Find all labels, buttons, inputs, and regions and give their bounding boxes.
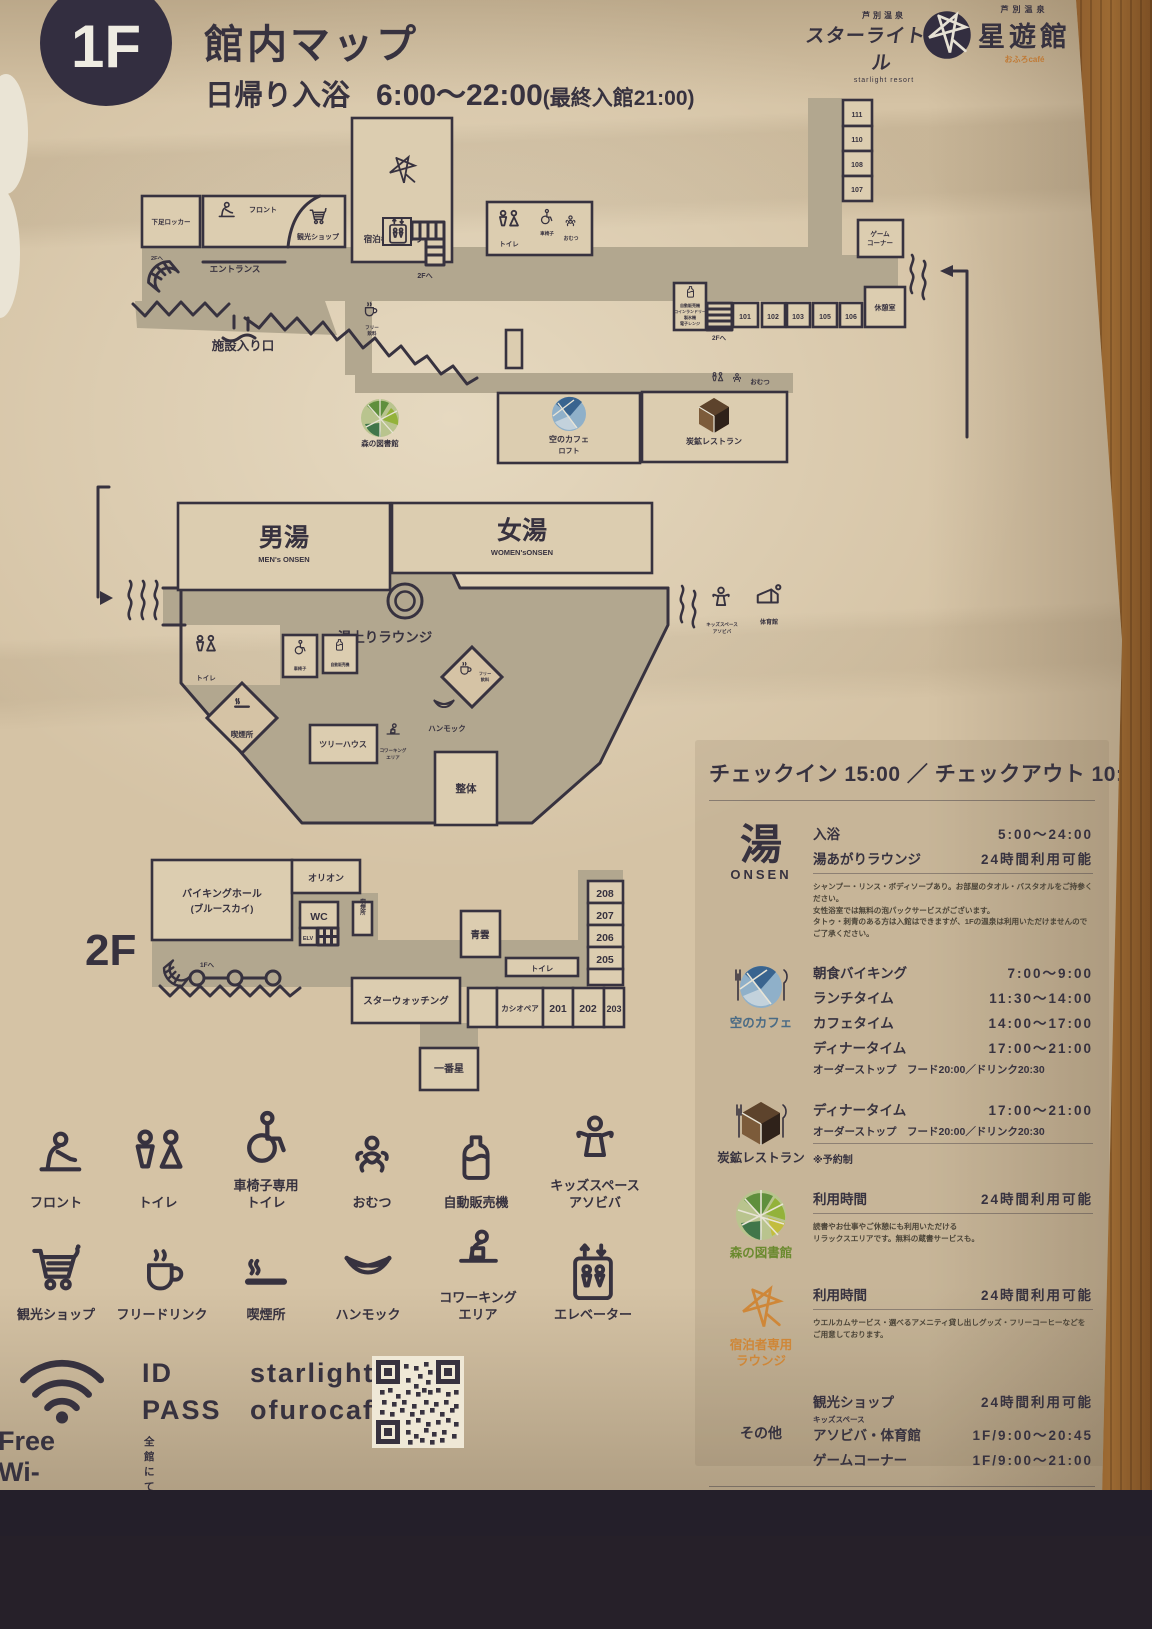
seiyukan-logo: 芦別温泉 星遊館 おふろcafé xyxy=(922,4,1071,65)
kids-space-icon xyxy=(565,1112,625,1172)
womens-onsen-label: 女湯 xyxy=(497,516,547,545)
restaurant-reserve-note: ※予約制 xyxy=(813,1151,1093,1166)
seiyukan-top-label: 芦別温泉 xyxy=(978,4,1071,15)
row-label: 湯あがりラウンジ xyxy=(813,848,921,868)
to-1f-label: 1Fへ xyxy=(200,962,215,969)
legend-front: フロント xyxy=(6,1127,106,1212)
coal-restaurant-icon xyxy=(730,1099,792,1147)
row-time: 24時間利用可能 xyxy=(981,1391,1093,1411)
elevator-icon xyxy=(564,1243,622,1301)
legend-elevator: エレベーター xyxy=(534,1243,652,1324)
coal-restaurant-name: 炭鉱レストラン xyxy=(717,1151,805,1167)
onsen-note1: シャンプー・リンス・ボディソープあり。お部屋のタオル・バスタオルをご持参ください… xyxy=(813,881,1093,905)
guest-lounge-name: 宿泊者専用ラウンジ xyxy=(730,1338,793,1369)
divider xyxy=(709,1486,1095,1487)
map-paper: 1F 館内マップ 日帰り入浴6:00〜22:00(最終入館21:00) 芦別温泉… xyxy=(0,0,1130,1496)
section-sky-cafe: 空のカフェ 朝食バイキング7:00〜9:00 ランチタイム11:30〜14:00… xyxy=(709,962,1095,1077)
rest-room-label: 休憩室 xyxy=(874,303,896,312)
smoking-icon xyxy=(237,1243,295,1301)
floor2-map: 2F バイキングホール (ブルースカイ) オリオン WC ELV 喫煙所 青雲 … xyxy=(85,855,645,1100)
toilet-label: トイレ xyxy=(499,240,519,248)
background-object xyxy=(0,188,20,318)
shop-label: 観光ショップ xyxy=(297,232,340,241)
room-111: 111 xyxy=(852,112,863,119)
legend-kids-space: キッズスペースアソビバ xyxy=(530,1112,660,1212)
free-drink-icon xyxy=(133,1243,191,1301)
others-name: その他 xyxy=(740,1423,782,1443)
womens-onsen-en-label: WOMEN'sONSEN xyxy=(491,548,553,557)
front-desk-icon xyxy=(25,1127,87,1189)
window-circles xyxy=(190,971,280,985)
sky-cafe-icon xyxy=(730,962,792,1012)
wifi-qr-code xyxy=(372,1356,464,1448)
smoking-label: 喫煙所 xyxy=(231,729,254,739)
vending-line1: 自動販売機 xyxy=(680,302,700,308)
row-label: ゲームコーナー xyxy=(813,1449,907,1469)
vending-line3: 製氷機 xyxy=(683,314,696,320)
game-corner-label2: コーナー xyxy=(867,239,893,247)
divider xyxy=(813,1309,1093,1310)
to-2f-label2: 2Fへ xyxy=(712,335,727,342)
shoe-locker-label: 下足ロッカー xyxy=(152,218,191,226)
room-208: 208 xyxy=(596,888,614,900)
onsen-note2: 女性浴室では無料の泡パックサービスがございます。 xyxy=(813,905,1093,917)
row-label: 観光ショップ xyxy=(813,1391,894,1411)
cafe-order-stop: オーダーストップ フード20:00／ドリンク20:30 xyxy=(813,1062,1093,1077)
floor-2f-badge: 2F xyxy=(85,926,136,975)
row-time: 5:00〜24:00 xyxy=(998,823,1093,843)
divider xyxy=(709,800,1095,801)
kids-space-icon xyxy=(713,588,729,606)
forest-library-icon xyxy=(734,1188,788,1242)
wifi-pass-label: PASS xyxy=(142,1395,250,1426)
gym-label: 体育館 xyxy=(760,618,778,626)
row-label: 入浴 xyxy=(813,823,840,843)
library-note2: リラックスエリアです。無料の蔵書サービスも。 xyxy=(813,1233,1093,1245)
to-2f-label: 2Fへ xyxy=(417,273,432,280)
onsen-kanji: 湯 xyxy=(740,823,782,867)
section-onsen: 湯 ONSEN 入浴5:00〜24:00 湯あがりラウンジ24時間利用可能 シャ… xyxy=(709,823,1095,940)
legend-diaper: おむつ xyxy=(322,1131,422,1212)
onsen-free-drink2: 飲料 xyxy=(480,676,490,683)
room-108: 108 xyxy=(851,162,863,169)
stairs-icon xyxy=(707,303,732,330)
seiyukan-star-icon xyxy=(922,10,972,60)
guest-lounge-star-icon xyxy=(736,1284,786,1334)
diaper-icon xyxy=(343,1131,401,1189)
row-time: 11:30〜14:00 xyxy=(989,987,1093,1007)
row-label: 利用時間 xyxy=(813,1284,867,1304)
mens-onsen-en-label: MEN's ONSEN xyxy=(258,555,309,564)
coworking-label1: コワーキング xyxy=(380,747,407,754)
row-time: 1F/9:00〜21:00 xyxy=(972,1449,1093,1469)
facility-entrance-label: 施設入り口 xyxy=(212,338,275,353)
lounge-note2: ご用意しております。 xyxy=(813,1329,1093,1341)
diaper-label2: おむつ xyxy=(750,377,770,386)
forest-library-label: 森の図書館 xyxy=(361,438,399,448)
wifi-icon xyxy=(16,1348,108,1424)
wifi-credentials: IDstarlight PASSofurocafe xyxy=(142,1358,391,1432)
room-206: 206 xyxy=(596,932,614,944)
front-label: フロント xyxy=(249,206,277,214)
free-drink-label2: 飲料 xyxy=(366,330,377,337)
row-time: 1F/9:00〜20:45 xyxy=(972,1424,1093,1444)
room-107: 107 xyxy=(851,187,863,194)
coworking-icon xyxy=(449,1226,507,1284)
sky-cafe-label: 空のカフェ xyxy=(549,434,589,444)
seiyukan-sub-label: おふろcafé xyxy=(978,54,1071,65)
onsen-flow-arrow xyxy=(911,255,967,437)
room-102: 102 xyxy=(767,314,779,321)
elevator-grid-icon xyxy=(318,928,338,945)
f2-smoking-label: 喫煙所 xyxy=(359,898,366,917)
legend-coworking: コワーキングエリア xyxy=(422,1226,534,1324)
treehouse-label: ツリーハウス xyxy=(319,740,367,749)
cassiopeia-label: カシオペア xyxy=(501,1004,539,1013)
sky-cafe-icon xyxy=(552,397,586,431)
onsen-entry-arrow-left xyxy=(98,487,157,619)
legend-shop: 観光ショップ xyxy=(6,1239,106,1324)
section-others: その他 観光ショップ24時間利用可能 キッズスペースアソビバ・体育館 1F/9:… xyxy=(709,1391,1095,1474)
elv-label: ELV xyxy=(303,936,314,942)
section-guest-lounge: 宿泊者専用ラウンジ 利用時間24時間利用可能 ウエルカムサービス・選べるアメニテ… xyxy=(709,1284,1095,1369)
kids-space-label2: アソビバ xyxy=(713,628,732,635)
onsen-exit-waves-right xyxy=(681,586,695,627)
background-object xyxy=(0,74,28,194)
seiun-label: 青雲 xyxy=(470,929,490,941)
onsen-wheelchair-label: 車椅子 xyxy=(294,665,307,672)
section-coal-restaurant: 炭鉱レストラン ディナータイム17:00〜21:00 オーダーストップ フード2… xyxy=(709,1099,1095,1167)
row-label: ディナータイム xyxy=(813,1037,906,1057)
library-note1: 読書やお仕事やご休憩にも利用いただける xyxy=(813,1221,1093,1233)
page-title: 館内マップ xyxy=(204,12,419,70)
room-202: 202 xyxy=(579,1003,597,1015)
legend-free-drink: フリードリンク xyxy=(106,1243,218,1324)
row-label: ランチタイム xyxy=(813,987,894,1007)
restaurant-order-stop: オーダーストップ フード20:00／ドリンク20:30 xyxy=(813,1124,1093,1139)
room-103: 103 xyxy=(792,314,804,321)
room-105: 105 xyxy=(819,314,831,321)
elevator-icon xyxy=(383,218,411,245)
row-label: カフェタイム xyxy=(813,1012,894,1032)
shop-cart-icon xyxy=(25,1239,87,1301)
row-time: 17:00〜21:00 xyxy=(988,1099,1093,1119)
hammock-label: ハンモック xyxy=(428,723,466,733)
legend-hammock: ハンモック xyxy=(314,1239,422,1324)
ichibanboshi-label: 一番星 xyxy=(434,1062,464,1075)
f2-toilet-label: トイレ xyxy=(531,964,554,973)
room-101: 101 xyxy=(739,314,751,321)
room-205: 205 xyxy=(596,954,614,966)
divider xyxy=(813,1143,1093,1144)
wifi-pass-value: ofurocafe xyxy=(250,1395,391,1426)
vending-line4: 電子レンジ xyxy=(680,320,700,326)
wifi-id-value: starlight xyxy=(250,1358,375,1389)
row-label: キッズスペースアソビバ・体育館 xyxy=(813,1416,921,1444)
game-corner-label: ゲーム xyxy=(870,229,890,238)
vending-icon xyxy=(447,1131,505,1189)
hammock-icon xyxy=(337,1239,399,1301)
legend-toilet: トイレ xyxy=(106,1125,210,1212)
divider xyxy=(813,1213,1093,1214)
section-forest-library: 森の図書館 利用時間24時間利用可能 読書やお仕事やご休憩にも利用いただける リ… xyxy=(709,1188,1095,1262)
seitai-label: 整体 xyxy=(455,782,477,795)
lounge-note1: ウエルカムサービス・選べるアメニティ貸し出しグッズ・フリーコーヒーなどを xyxy=(813,1317,1093,1329)
row-time: 14:00〜17:00 xyxy=(988,1012,1093,1032)
onsen-toilet-label: トイレ xyxy=(196,674,216,682)
sky-cafe-name: 空のカフェ xyxy=(730,1016,793,1032)
coal-restaurant-label: 炭鉱レストラン xyxy=(685,436,742,446)
info-panel: チェックイン 15:00 ／ チェックアウト 10:00 湯 ONSEN 入浴5… xyxy=(695,740,1109,1466)
onsen-en: ONSEN xyxy=(730,867,791,882)
gym-icon xyxy=(758,585,781,602)
diaper-label: おむつ xyxy=(563,235,578,242)
legend: フロント トイレ 車椅子専用トイレ おむつ 自動販売機 キッズスペースアソビバ xyxy=(6,1108,696,1338)
floor1-map: 宿泊者専用ラウンジ 下足ロッカー フロント 観光ショップ 2Fへ トイレ 車椅子… xyxy=(85,88,975,480)
wheelchair-icon xyxy=(234,1108,298,1172)
row-label: 朝食バイキング xyxy=(813,962,907,982)
room-110: 110 xyxy=(851,137,862,144)
room-201: 201 xyxy=(549,1003,567,1015)
vending-line2: コインランドリー xyxy=(674,308,706,314)
viking-hall-label1: バイキングホール xyxy=(182,887,262,900)
kids-space-label1: キッズスペース xyxy=(706,621,738,628)
onsen-note3: タトゥ・刺青のある方は入館はできますが、1Fの温泉は利用いただけませんのでご了承… xyxy=(813,916,1093,940)
wheelchair-label: 車椅子 xyxy=(540,230,554,237)
toilet-icon xyxy=(197,636,215,651)
forest-library-name: 森の図書館 xyxy=(730,1246,793,1262)
row-label: ディナータイム xyxy=(813,1099,906,1119)
mens-onsen-label: 男湯 xyxy=(259,524,309,552)
sky-cafe-sub-label: ロフト xyxy=(559,447,580,455)
photo-bottom-shadow xyxy=(0,1490,1152,1536)
legend-vending: 自動販売機 xyxy=(422,1131,530,1212)
legend-wheelchair-toilet: 車椅子専用トイレ xyxy=(210,1108,322,1212)
row-time: 7:00〜9:00 xyxy=(1007,962,1093,982)
viking-hall-label2: (ブルースカイ) xyxy=(191,903,254,915)
star-watching-room-label: スターウォッチング xyxy=(363,995,449,1007)
row-time: 17:00〜21:00 xyxy=(988,1037,1093,1057)
legend-smoking: 喫煙所 xyxy=(218,1243,314,1324)
wifi-id-label: ID xyxy=(142,1358,250,1389)
room-207: 207 xyxy=(596,910,614,922)
entrance-label: エントランス xyxy=(210,264,261,274)
hotel-logo-sub-label: starlight resort xyxy=(798,77,970,84)
to-2f-label3: 2Fへ xyxy=(151,256,163,262)
divider xyxy=(813,873,1093,874)
row-time: 24時間利用可能 xyxy=(981,1284,1093,1304)
f2-zigzag-wall xyxy=(160,986,300,996)
row-label: 利用時間 xyxy=(813,1188,867,1208)
room-106: 106 xyxy=(845,314,857,321)
row-time: 24時間利用可能 xyxy=(981,848,1093,868)
checkin-checkout: チェックイン 15:00 ／ チェックアウト 10:00 xyxy=(709,758,1095,788)
row-time: 24時間利用可能 xyxy=(981,1188,1093,1208)
seiyukan-label: 星遊館 xyxy=(978,15,1071,54)
wc-label: WC xyxy=(310,911,328,923)
room-203: 203 xyxy=(606,1004,621,1014)
onsen-vending-label: 自動販売機 xyxy=(331,662,350,667)
toilet-icon xyxy=(126,1125,190,1189)
forest-library-icon xyxy=(361,399,399,437)
orion-label: オリオン xyxy=(308,873,344,883)
